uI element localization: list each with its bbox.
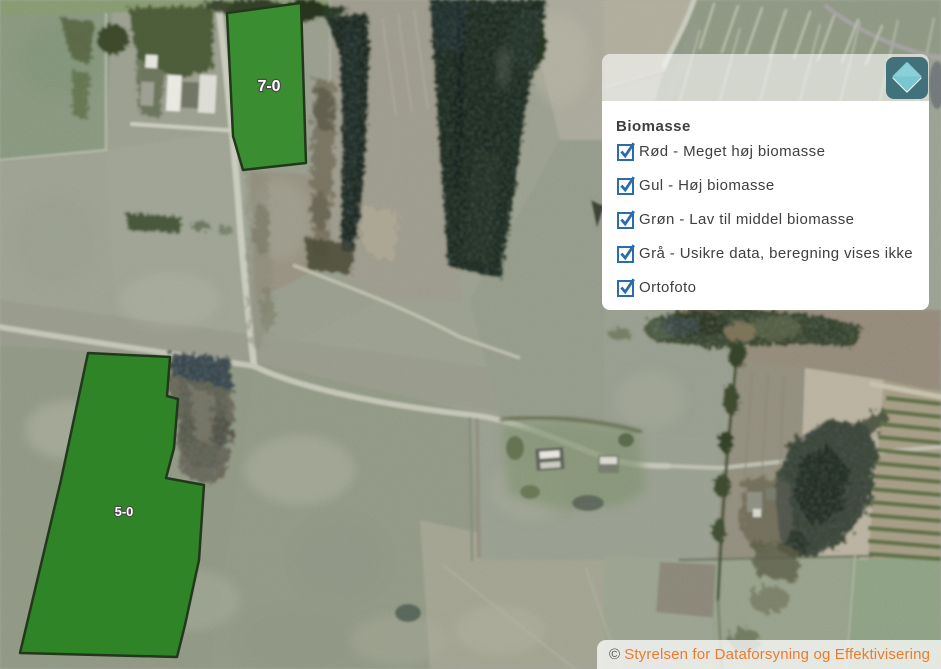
svg-text:7-0: 7-0 [257,78,280,95]
svg-text:5-0: 5-0 [115,504,134,519]
